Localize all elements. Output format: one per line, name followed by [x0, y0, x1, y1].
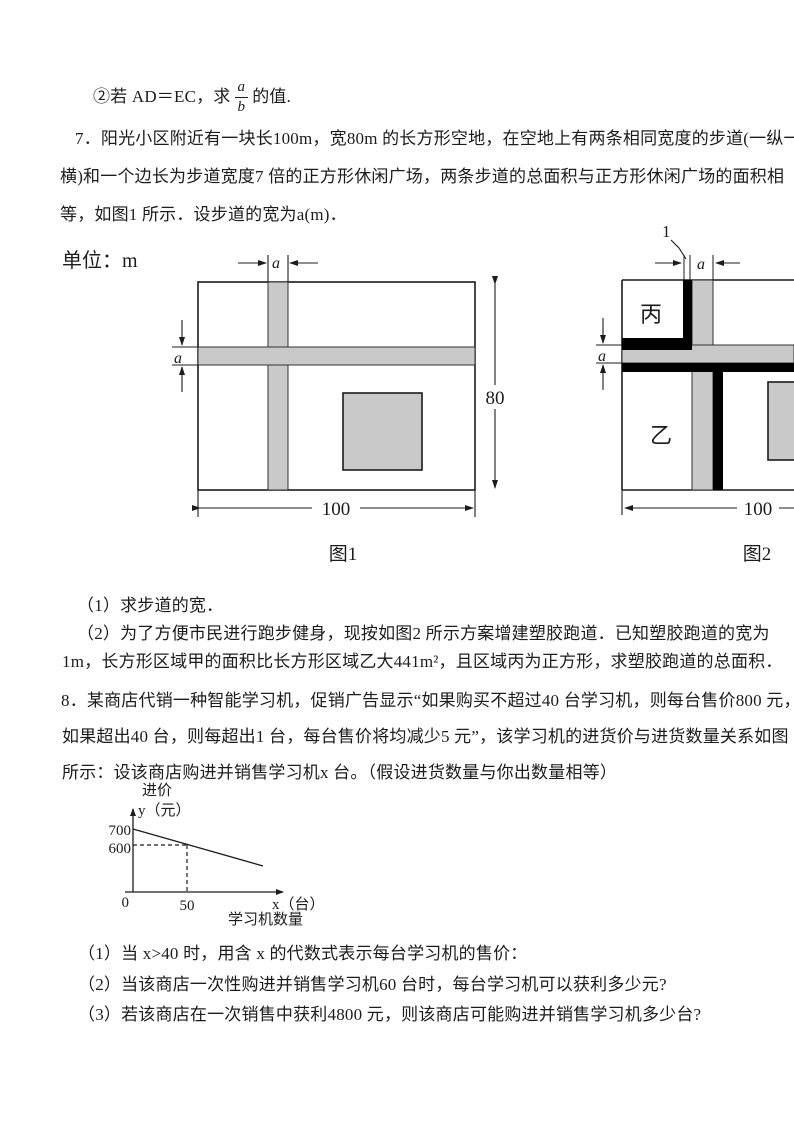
problem8-sub1: （1）当 x>40 时，用含 x 的代数式表示每台学习机的售价： [78, 943, 528, 965]
problem8-sub2: （2）当该商店一次性购进并销售学习机60 台时，每台学习机可以获利多少元? [78, 974, 667, 996]
prelude-line: ②若 AD＝EC，求 a b 的值. [93, 80, 291, 114]
problem7-line-1: 7．阳光小区附近有一块长100m，宽80m 的长方形空地，在空地上有两条相同宽度… [75, 128, 794, 150]
problem7-sub1: （1）求步道的宽． [77, 595, 223, 617]
figure1-outer-rect [198, 282, 475, 490]
problem7-sub2-line2: 1m，长方形区域甲的面积比长方形区域乙大441m²，且区域丙为正方形，求塑胶跑道… [62, 651, 783, 673]
graph-price-line [133, 829, 263, 866]
problem8-line-1: 8．某商店代销一种智能学习机，促销广告显示“如果购买不超过40 台学习机，则每台… [61, 690, 794, 712]
figure1-square-plaza [343, 393, 422, 470]
graph-origin-label: 0 [122, 895, 130, 911]
figure1-left-a-label: a [174, 350, 182, 367]
figure2-region-bing-label: 丙 [640, 302, 662, 327]
figure1-horizontal-walkway [198, 347, 475, 365]
prelude-suffix: 的值. [252, 86, 291, 108]
figure2-region-yi-label: 乙 [650, 423, 672, 448]
price-graph: 进价 y（元） 700 600 0 50 x（台） 学习机数量 [95, 778, 325, 930]
figure1-height-label: 80 [486, 388, 505, 409]
figure1-width-label: 100 [322, 499, 351, 520]
figure1-top-a-label: a [272, 255, 280, 272]
figure2-track-vertical-bottom [713, 363, 723, 490]
graph-xlabel: x（台） [272, 896, 325, 913]
graph-ytick-600: 600 [109, 841, 132, 857]
figure2-track-horizontal-full [622, 363, 794, 372]
figure2-caption: 图2 [743, 544, 772, 565]
worksheet-page: ②若 AD＝EC，求 a b 的值. 7．阳光小区附近有一块长100m，宽80m… [0, 0, 794, 1123]
figure2-top-a-label: a [697, 256, 705, 273]
figure2-square-plaza [768, 382, 794, 460]
figure2-vertical-walkway [692, 280, 713, 490]
figure2-drawing: 丙 乙 1 a a 100 图2 [596, 222, 794, 565]
figure2-left-a-label: a [598, 348, 606, 365]
figure2-width-label: 100 [744, 499, 773, 520]
graph-ylabel-top: 进价 [142, 782, 172, 799]
graph-ylabel: y（元） [138, 802, 191, 819]
problem8-line-2: 如果超出40 台，则每超出1 台，每台售价将均减少5 元”，该学习机的进货价与进… [62, 726, 789, 748]
problem8-sub3: （3）若该商店在一次销售中获利4800 元，则该商店可能购进并销售学习机多少台? [78, 1004, 701, 1026]
figure2-track-horizontal-left [622, 338, 692, 350]
graph-xlabel-sub: 学习机数量 [228, 911, 303, 928]
graph-xtick-50: 50 [180, 898, 195, 914]
figure1-caption: 图1 [329, 544, 358, 565]
problem7-line-2: 横)和一个边长为步道宽度7 倍的正方形休闲广场，两条步道的总面积与正方形休闲广场… [60, 166, 784, 188]
fraction-denominator: b [238, 98, 246, 115]
prelude-text: ②若 AD＝EC，求 [93, 86, 231, 108]
figures-canvas: a a 80 100 图1 [0, 215, 794, 570]
graph-ytick-700: 700 [109, 823, 132, 839]
figure2-track-width-label: 1 [662, 222, 671, 241]
fraction-numerator: a [235, 80, 249, 98]
fraction-a-over-b: a b [235, 80, 249, 115]
figure1-drawing: a a 80 100 图1 [172, 255, 512, 565]
figure1-vertical-walkway [268, 282, 288, 490]
problem7-sub2-line1: （2）为了方便市民进行跑步健身，现按如图2 所示方案增建塑胶跑道．已知塑胶跑道的… [77, 623, 770, 645]
